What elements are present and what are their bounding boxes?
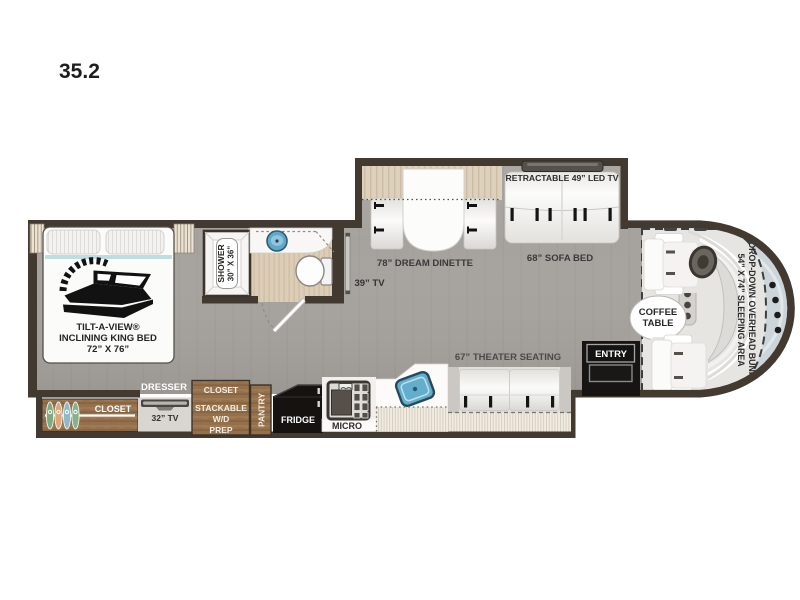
svg-text:32” TV: 32” TV [152,413,179,423]
svg-text:54” X 74” SLEEPING AREA: 54” X 74” SLEEPING AREA [736,253,746,367]
svg-text:68” SOFA BED: 68” SOFA BED [527,253,593,264]
svg-text:PANTRY: PANTRY [256,393,266,427]
svg-text:39” TV: 39” TV [354,278,385,289]
svg-text:67” THEATER SEATING: 67” THEATER SEATING [455,352,561,363]
svg-text:30” X 36”: 30” X 36” [227,246,236,282]
svg-text:MICRO: MICRO [332,421,362,431]
svg-text:CLOSET: CLOSET [95,404,132,414]
svg-text:ENTRY: ENTRY [595,349,628,360]
svg-text:W/D: W/D [213,414,230,424]
svg-text:RETRACTABLE 49” LED TV: RETRACTABLE 49” LED TV [506,173,619,183]
svg-text:35.2: 35.2 [59,60,100,83]
svg-text:COFFEE: COFFEE [639,307,678,318]
svg-text:TILT-A-VIEW®: TILT-A-VIEW® [76,322,139,333]
svg-text:INCLINING KING BED: INCLINING KING BED [59,333,157,344]
svg-text:78” DREAM DINETTE: 78” DREAM DINETTE [377,258,473,269]
svg-text:FRIDGE: FRIDGE [281,415,315,425]
svg-text:TABLE: TABLE [643,318,674,329]
svg-text:SHOWER: SHOWER [216,244,226,282]
svg-text:PREP: PREP [209,425,232,435]
svg-text:DRESSER: DRESSER [141,382,187,393]
svg-text:72” X 76”: 72” X 76” [87,344,129,355]
svg-text:STACKABLE: STACKABLE [195,403,247,413]
svg-text:DROP-DOWN OVERHEAD BUNK: DROP-DOWN OVERHEAD BUNK [747,242,757,379]
svg-text:CLOSET: CLOSET [204,385,239,395]
